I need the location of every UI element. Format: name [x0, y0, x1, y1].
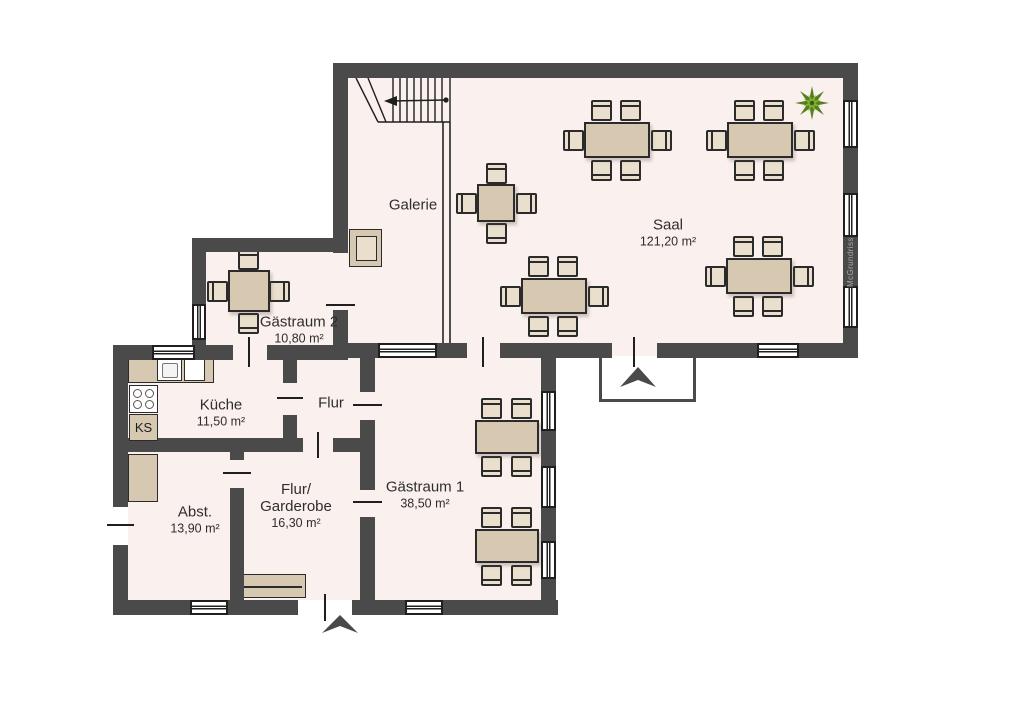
room-label-flur: Flur — [318, 396, 344, 413]
gallery-railing — [442, 122, 451, 343]
chair — [481, 398, 502, 419]
chair — [762, 236, 783, 257]
sink-basin — [162, 363, 178, 378]
dining-table-4 — [475, 529, 539, 563]
chair — [620, 100, 641, 121]
wall — [799, 343, 843, 358]
room-area: 13,90 m² — [170, 521, 219, 535]
room-name: Garderobe — [260, 499, 332, 516]
chair — [763, 100, 784, 121]
door-marker — [353, 404, 382, 406]
wardrobe-bench — [239, 574, 306, 598]
chair — [486, 223, 507, 244]
chair — [557, 316, 578, 337]
dining-table-6 — [726, 258, 792, 294]
chair — [734, 100, 755, 121]
wall — [192, 238, 206, 304]
window — [378, 343, 437, 358]
door-marker — [324, 594, 326, 621]
chair — [557, 256, 578, 277]
wall — [230, 452, 244, 460]
chair — [238, 249, 259, 270]
room-name: Abst. — [170, 505, 219, 522]
window — [152, 345, 195, 360]
chair — [511, 565, 532, 586]
chair — [588, 286, 609, 307]
chair — [486, 163, 507, 184]
wall — [192, 238, 348, 252]
window — [541, 466, 556, 508]
wall — [228, 600, 298, 615]
chair — [794, 130, 815, 151]
chair — [706, 130, 727, 151]
wall — [360, 358, 375, 392]
door-marker — [248, 337, 250, 367]
armchair — [349, 229, 382, 267]
wall — [113, 600, 190, 615]
room-label-gaestraum1: Gästraum 1 38,50 m² — [386, 480, 464, 511]
room-label-gaestraum2: Gästraum 2 10,80 m² — [260, 315, 338, 346]
window — [843, 193, 858, 237]
room-area: 10,80 m² — [260, 331, 338, 345]
chair — [762, 296, 783, 317]
kitchen-sink — [157, 359, 182, 381]
chair — [511, 507, 532, 528]
entrance-porch — [599, 356, 696, 402]
wall — [267, 345, 348, 360]
chair — [591, 100, 612, 121]
door-marker — [107, 524, 134, 526]
chair — [651, 130, 672, 151]
chair — [705, 266, 726, 287]
room-name: Flur — [318, 396, 344, 413]
window — [843, 100, 858, 148]
door-marker — [317, 432, 319, 458]
chair — [793, 266, 814, 287]
floor-plan: KS — [0, 0, 1024, 724]
burner — [133, 400, 142, 409]
dining-table-6 — [521, 278, 587, 314]
window — [405, 600, 443, 615]
wall — [113, 345, 128, 507]
dining-table-6 — [727, 122, 793, 158]
chair — [511, 398, 532, 419]
chair — [500, 286, 521, 307]
window — [192, 304, 206, 340]
room-name: Saal — [640, 218, 696, 235]
chair — [481, 507, 502, 528]
room-area: 11,50 m² — [197, 414, 245, 428]
watermark: McGrundriss — [843, 236, 858, 288]
chair — [481, 456, 502, 477]
wall — [352, 600, 405, 615]
room-area: 38,50 m² — [386, 496, 464, 510]
room-label-abstellraum: Abst. 13,90 m² — [170, 505, 219, 536]
chair — [763, 160, 784, 181]
window — [541, 541, 556, 579]
chair — [563, 130, 584, 151]
wall — [657, 343, 757, 358]
wall — [230, 488, 244, 600]
wall — [541, 345, 556, 391]
storage-cabinet — [128, 454, 158, 502]
window — [757, 343, 799, 358]
chair — [207, 281, 228, 302]
door-marker — [633, 337, 635, 367]
kitchen-appliance — [184, 359, 205, 381]
room-area: 16,30 m² — [260, 516, 332, 530]
wall — [437, 343, 467, 358]
chair — [528, 316, 549, 337]
door-marker — [277, 397, 303, 399]
door-marker — [353, 501, 382, 503]
chair — [269, 281, 290, 302]
wall — [360, 420, 375, 490]
wall — [283, 358, 297, 383]
chair — [481, 565, 502, 586]
chair — [733, 296, 754, 317]
dining-table-4 — [477, 184, 515, 222]
chair — [238, 313, 259, 334]
room-name: Küche — [197, 398, 245, 415]
wall — [195, 345, 233, 360]
room-label-saal: Saal 121,20 m² — [640, 218, 696, 249]
chair — [620, 160, 641, 181]
dining-table-4 — [475, 420, 539, 454]
window — [190, 600, 228, 615]
dining-table-6 — [584, 122, 650, 158]
window — [843, 286, 858, 328]
stove — [129, 385, 158, 413]
chair — [733, 236, 754, 257]
door-marker — [326, 304, 355, 306]
wall — [843, 148, 858, 193]
door-marker — [482, 337, 484, 367]
chair — [516, 193, 537, 214]
chair — [528, 256, 549, 277]
room-label-flur-garderobe: Flur/ Garderobe 16,30 m² — [260, 482, 332, 530]
wall — [500, 343, 612, 358]
room-name: Galerie — [389, 198, 437, 215]
wall — [541, 431, 556, 466]
room-name: Gästraum 1 — [386, 480, 464, 497]
entrance-arrow-icon — [322, 615, 358, 633]
chair — [734, 160, 755, 181]
fridge-box: KS — [129, 414, 158, 441]
wall — [333, 63, 858, 78]
burner — [133, 389, 142, 398]
wall — [541, 579, 556, 615]
burner — [145, 400, 154, 409]
fridge-label: KS — [135, 420, 152, 435]
room-label-kueche: Küche 11,50 m² — [197, 398, 245, 429]
room-name: Gästraum 2 — [260, 315, 338, 332]
chair — [456, 193, 477, 214]
wall — [333, 63, 348, 253]
wall — [843, 328, 858, 358]
wall — [541, 508, 556, 541]
room-area: 121,20 m² — [640, 234, 696, 248]
burner — [145, 389, 154, 398]
wall — [843, 63, 858, 100]
room-name: Flur/ — [260, 482, 332, 499]
dining-table-4 — [228, 270, 270, 312]
wall — [360, 517, 375, 600]
chair — [591, 160, 612, 181]
window — [541, 391, 556, 431]
door-marker — [223, 472, 251, 474]
chair — [511, 456, 532, 477]
room-label-galerie: Galerie — [389, 198, 437, 215]
